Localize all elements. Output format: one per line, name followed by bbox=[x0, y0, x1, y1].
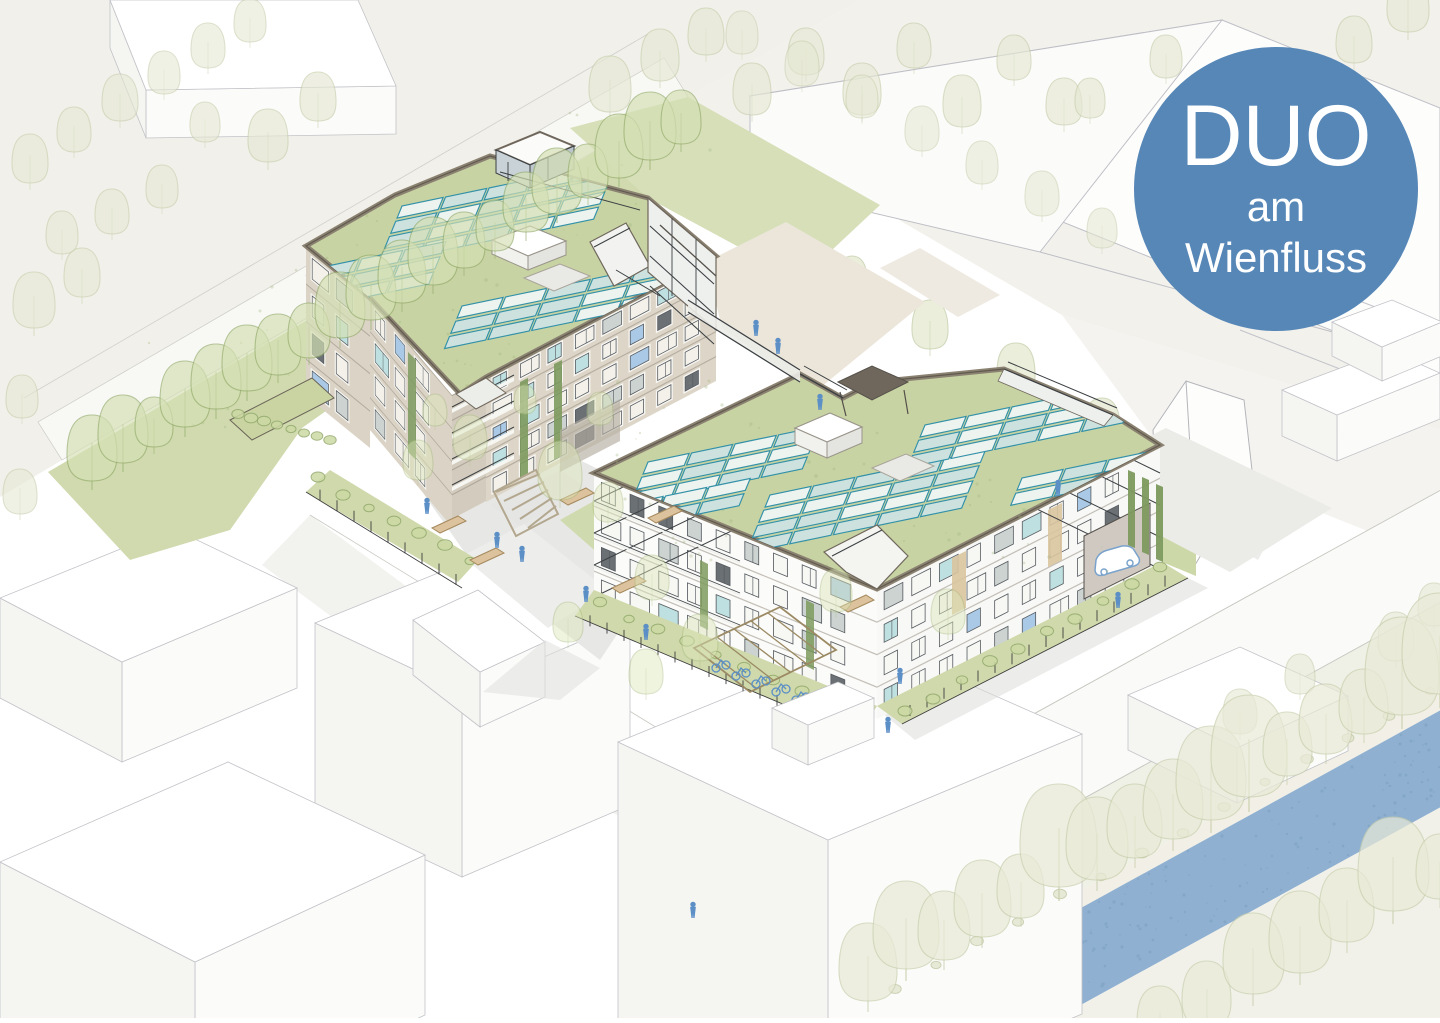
svg-text:am: am bbox=[1247, 183, 1305, 230]
svg-text:Wienfluss: Wienfluss bbox=[1185, 234, 1367, 281]
svg-text:DUO: DUO bbox=[1180, 88, 1371, 184]
